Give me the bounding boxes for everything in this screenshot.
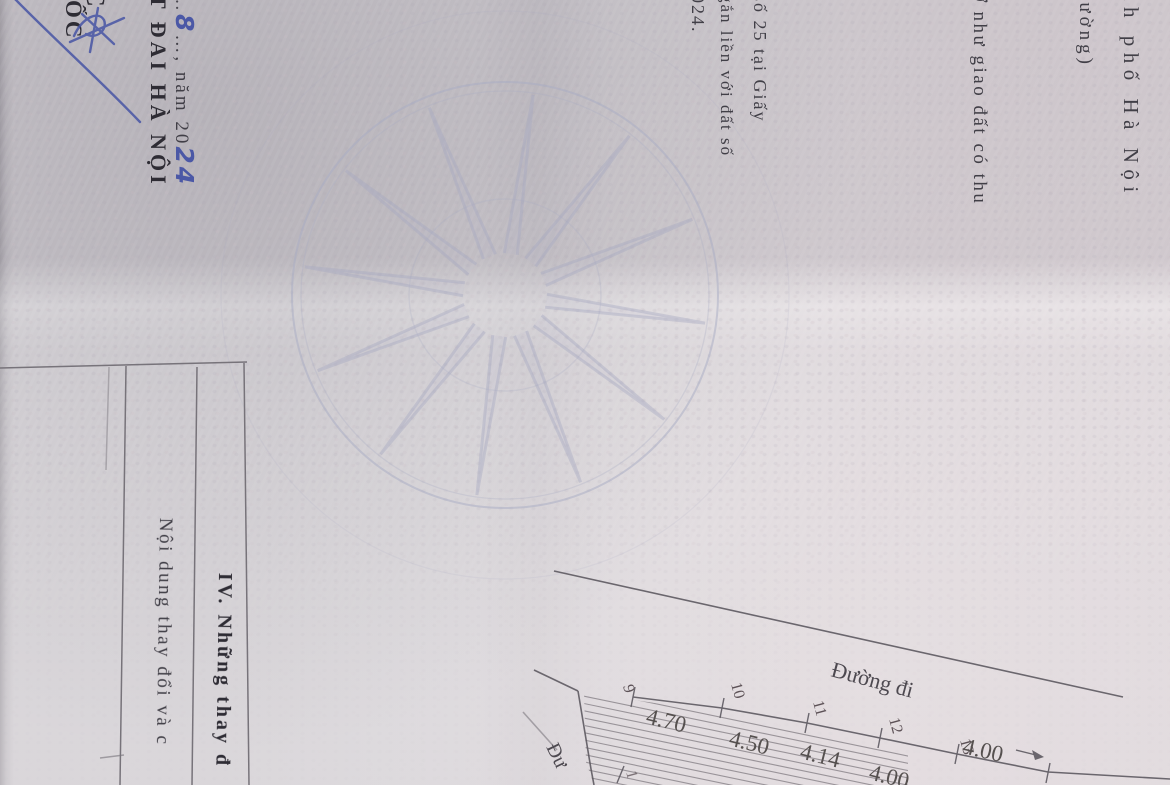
signature-title-fragment-oc: ỐC bbox=[60, 0, 86, 41]
date-printed-text: …, năm 20 bbox=[171, 34, 192, 146]
emblem-ray bbox=[477, 335, 506, 495]
table-line-row-1 bbox=[120, 366, 126, 785]
date-line: …8…, năm 2024 bbox=[170, 0, 198, 187]
certificate-line-1: số 25 tại Giấy bbox=[750, 0, 770, 123]
table-line-row-2 bbox=[192, 367, 197, 785]
dimension-numbers: 4.70 4.50 4.14 4.00 4.00 bbox=[644, 704, 1006, 785]
section-iv-column-header: Nội dung thay đổi và c bbox=[152, 518, 176, 747]
emblem-ray bbox=[305, 267, 465, 296]
road-label-2: Đư bbox=[542, 740, 573, 773]
section-iv-title: IV. Những thay đ bbox=[211, 573, 236, 769]
certificate-line-2: gắn liền với đất số bbox=[717, 0, 736, 157]
dimension-arrow-head bbox=[1032, 750, 1044, 760]
table-line-row-3 bbox=[244, 363, 249, 785]
dim-4-50: 4.50 bbox=[727, 726, 772, 760]
road-label: Đường đi bbox=[829, 657, 917, 703]
diagram-labels: Đường đi Đư 9 10 11 12 13 1 4.70 4.50 4.… bbox=[542, 657, 1006, 785]
emblem-ray bbox=[545, 294, 705, 323]
certificate-line-3: 024. bbox=[688, 0, 708, 34]
vertex-11: 11 bbox=[809, 699, 829, 718]
land-certificate-photo: Đường đi Đư 9 10 11 12 13 1 4.70 4.50 4.… bbox=[0, 0, 1170, 785]
grant-type-line: Ở như giao đất có thu bbox=[969, 0, 990, 205]
handwritten-month: 8 bbox=[170, 14, 199, 34]
vertex-10: 10 bbox=[727, 681, 748, 701]
vertex-9: 9 bbox=[619, 683, 637, 695]
table-line-column-divider bbox=[0, 362, 247, 368]
dim-4-00-a: 4.00 bbox=[867, 760, 912, 785]
left-road-edge-top bbox=[534, 670, 578, 691]
emblem-watermark bbox=[221, 11, 789, 579]
vertex-12: 12 bbox=[885, 716, 906, 736]
emblem-ray bbox=[504, 95, 533, 255]
office-name-line: T ĐAI HÀ NỘI bbox=[145, 0, 170, 188]
table-line-faint bbox=[106, 367, 109, 470]
date-leader-dots: … bbox=[171, 0, 192, 14]
header-city-line: nh phố Hà Nội bbox=[1118, 0, 1142, 199]
fragment-e: ể bbox=[772, 0, 792, 2]
dim-4-00-b: 4.00 bbox=[961, 734, 1006, 767]
header-ward-line: (ường) bbox=[1075, 0, 1096, 68]
dim-4-14: 4.14 bbox=[798, 739, 844, 773]
handwritten-year: 24 bbox=[170, 146, 199, 187]
